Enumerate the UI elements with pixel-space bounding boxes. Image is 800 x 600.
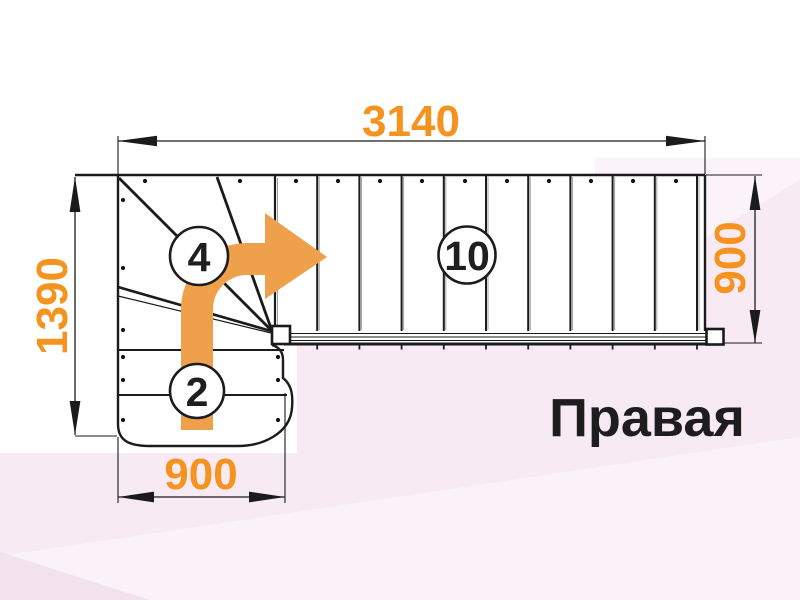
stair-plan-svg: 4 10 2 3140 1390 900 900 bbox=[0, 0, 800, 600]
dim-top-label: 3140 bbox=[362, 97, 460, 146]
dim-left-label: 1390 bbox=[28, 257, 77, 355]
step-count-upper: 10 bbox=[439, 227, 496, 284]
stair-drawing-canvas: 4 10 2 3140 1390 900 900 bbox=[0, 0, 800, 600]
newel-post-corner bbox=[272, 326, 290, 344]
step-count-lower: 2 bbox=[170, 364, 224, 418]
lower-count-label: 2 bbox=[186, 369, 209, 415]
newel-post-right bbox=[707, 329, 724, 345]
winder-count-label: 4 bbox=[188, 234, 211, 280]
dim-right-label: 900 bbox=[706, 221, 755, 294]
step-count-winder: 4 bbox=[170, 227, 228, 285]
dim-bottom-label: 900 bbox=[164, 450, 237, 499]
page-title: Правая bbox=[549, 388, 745, 448]
upper-count-label: 10 bbox=[444, 233, 490, 279]
